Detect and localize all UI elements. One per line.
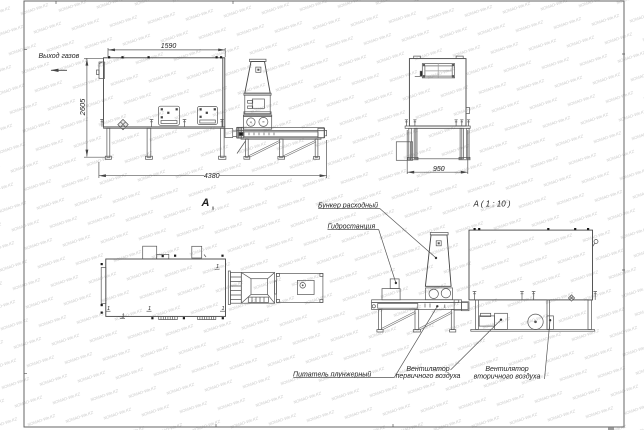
svg-text:NOMAD-We.KZ: NOMAD-We.KZ — [401, 29, 431, 43]
svg-text:NOMAD-We.KZ: NOMAD-We.KZ — [343, 347, 373, 361]
svg-text:NOMAD-We.KZ: NOMAD-We.KZ — [477, 22, 507, 36]
svg-text:NOMAD-We.KZ: NOMAD-We.KZ — [178, 341, 208, 355]
svg-text:NOMAD-We.KZ: NOMAD-We.KZ — [389, 69, 419, 83]
svg-text:NOMAD-We.KZ: NOMAD-We.KZ — [139, 286, 169, 300]
svg-text:NOMAD-We.KZ: NOMAD-We.KZ — [0, 5, 11, 19]
svg-text:NOMAD-We.KZ: NOMAD-We.KZ — [622, 343, 644, 357]
svg-text:NOMAD-We.KZ: NOMAD-We.KZ — [547, 408, 577, 422]
svg-text:NOMAD-We.KZ: NOMAD-We.KZ — [464, 4, 494, 18]
svg-text:Выход газов: Выход газов — [39, 52, 80, 60]
svg-text:NOMAD-We.KZ: NOMAD-We.KZ — [404, 205, 434, 219]
svg-text:NOMAD-We.KZ: NOMAD-We.KZ — [392, 245, 422, 259]
svg-text:NOMAD-We.KZ: NOMAD-We.KZ — [203, 320, 233, 334]
svg-text:NOMAD-We.KZ: NOMAD-We.KZ — [303, 233, 333, 247]
svg-text:NOMAD-We.KZ: NOMAD-We.KZ — [77, 369, 107, 383]
svg-text:NOMAD-We.KZ: NOMAD-We.KZ — [224, 63, 254, 77]
svg-text:NOMAD-We.KZ: NOMAD-We.KZ — [609, 325, 639, 339]
svg-text:NOMAD-We.KZ: NOMAD-We.KZ — [73, 135, 103, 149]
svg-text:NOMAD-We.KZ: NOMAD-We.KZ — [469, 297, 499, 311]
svg-text:NOMAD-We.KZ: NOMAD-We.KZ — [254, 335, 284, 349]
svg-text:NOMAD-We.KZ: NOMAD-We.KZ — [9, 101, 39, 115]
svg-text:NOMAD-We.KZ: NOMAD-We.KZ — [531, 214, 561, 228]
svg-text:NOMAD-We.KZ: NOMAD-We.KZ — [518, 195, 548, 209]
svg-text:NOMAD-We.KZ: NOMAD-We.KZ — [355, 307, 385, 321]
svg-text:NOMAD-We.KZ: NOMAD-We.KZ — [338, 54, 368, 68]
svg-text:2605: 2605 — [78, 98, 87, 117]
svg-text:NOMAD-We.KZ: NOMAD-We.KZ — [579, 53, 609, 67]
svg-text:NOMAD-We.KZ: NOMAD-We.KZ — [99, 172, 129, 186]
svg-text:NOMAD-We.KZ: NOMAD-We.KZ — [608, 266, 638, 280]
svg-text:NOMAD-We.KZ: NOMAD-We.KZ — [148, 70, 178, 84]
svg-text:NOMAD-We.KZ: NOMAD-We.KZ — [204, 378, 234, 392]
svg-text:NOMAD-We.KZ: NOMAD-We.KZ — [366, 208, 396, 222]
svg-text:NOMAD-We.KZ: NOMAD-We.KZ — [402, 87, 432, 101]
svg-text:NOMAD-We.KZ: NOMAD-We.KZ — [126, 267, 156, 281]
svg-text:NOMAD-We.KZ: NOMAD-We.KZ — [606, 149, 636, 163]
svg-text:NOMAD-We.KZ: NOMAD-We.KZ — [492, 158, 522, 172]
svg-text:NOMAD-We.KZ: NOMAD-We.KZ — [341, 230, 371, 244]
svg-text:NOMAD-We.KZ: NOMAD-We.KZ — [331, 387, 361, 401]
svg-text:NOMAD-We.KZ: NOMAD-We.KZ — [541, 56, 571, 70]
svg-text:NOMAD-We.KZ: NOMAD-We.KZ — [147, 11, 177, 25]
svg-text:NOMAD-We.KZ: NOMAD-We.KZ — [186, 66, 216, 80]
svg-text:NOMAD-We.KZ: NOMAD-We.KZ — [555, 133, 585, 147]
svg-text:NOMAD-We.KZ: NOMAD-We.KZ — [123, 91, 153, 105]
svg-text:NOMAD-We.KZ: NOMAD-We.KZ — [26, 354, 56, 368]
svg-text:NOMAD-We.KZ: NOMAD-We.KZ — [327, 152, 357, 166]
svg-text:NOMAD-We.KZ: NOMAD-We.KZ — [585, 405, 615, 419]
svg-text:NOMAD-We.KZ: NOMAD-We.KZ — [520, 313, 550, 327]
svg-text:NOMAD-We.KZ: NOMAD-We.KZ — [50, 274, 80, 288]
svg-text:NOMAD-We.KZ: NOMAD-We.KZ — [200, 144, 230, 158]
svg-text:NOMAD-We.KZ: NOMAD-We.KZ — [48, 156, 78, 170]
svg-text:NOMAD-We.KZ: NOMAD-We.KZ — [363, 32, 393, 46]
svg-text:NOMAD-We.KZ: NOMAD-We.KZ — [329, 270, 359, 284]
svg-text:NOMAD-We.KZ: NOMAD-We.KZ — [100, 230, 130, 244]
svg-text:NOMAD-We.KZ: NOMAD-We.KZ — [391, 186, 421, 200]
svg-text:NOMAD-We.KZ: NOMAD-We.KZ — [175, 165, 205, 179]
svg-text:NOMAD-We.KZ: NOMAD-We.KZ — [266, 295, 296, 309]
svg-text:NOMAD-We.KZ: NOMAD-We.KZ — [0, 317, 29, 331]
svg-text:NOMAD-We.KZ: NOMAD-We.KZ — [189, 242, 219, 256]
svg-text:NOMAD-We.KZ: NOMAD-We.KZ — [494, 276, 524, 290]
svg-text:NOMAD-We.KZ: NOMAD-We.KZ — [597, 365, 627, 379]
svg-text:NOMAD-We.KZ: NOMAD-We.KZ — [72, 76, 102, 90]
svg-text:NOMAD-We.KZ: NOMAD-We.KZ — [546, 350, 576, 364]
svg-text:NOMAD-We.KZ: NOMAD-We.KZ — [0, 141, 26, 155]
svg-text:NOMAD-We.KZ: NOMAD-We.KZ — [503, 59, 533, 73]
svg-text:NOMAD-We.KZ: NOMAD-We.KZ — [176, 224, 206, 238]
svg-text:NOMAD-We.KZ: NOMAD-We.KZ — [102, 348, 132, 362]
svg-text:NOMAD-We.KZ: NOMAD-We.KZ — [264, 177, 294, 191]
svg-text:NOMAD-We.KZ: NOMAD-We.KZ — [342, 288, 372, 302]
svg-text:NOMAD-We.KZ: NOMAD-We.KZ — [0, 82, 25, 96]
svg-text:NOMAD-We.KZ: NOMAD-We.KZ — [354, 248, 384, 262]
svg-text:NOMAD-We.KZ: NOMAD-We.KZ — [241, 316, 271, 330]
svg-text:Гидростанция: Гидростанция — [328, 222, 376, 230]
svg-text:NOMAD-We.KZ: NOMAD-We.KZ — [517, 136, 547, 150]
svg-text:NOMAD-We.KZ: NOMAD-We.KZ — [313, 75, 343, 89]
svg-text:NOMAD-We.KZ: NOMAD-We.KZ — [556, 192, 586, 206]
svg-text:NOMAD-We.KZ: NOMAD-We.KZ — [306, 409, 336, 423]
svg-text:NOMAD-We.KZ: NOMAD-We.KZ — [274, 20, 304, 34]
svg-text:NOMAD-We.KZ: NOMAD-We.KZ — [287, 38, 317, 52]
svg-text:NOMAD-We.KZ: NOMAD-We.KZ — [381, 344, 411, 358]
svg-text:NOMAD-We.KZ: NOMAD-We.KZ — [553, 16, 583, 30]
svg-text:NOMAD-We.KZ: NOMAD-We.KZ — [63, 292, 93, 306]
svg-text:NOMAD-We.KZ: NOMAD-We.KZ — [13, 336, 43, 350]
svg-text:NOMAD-We.KZ: NOMAD-We.KZ — [593, 130, 623, 144]
svg-text:NOMAD-We.KZ: NOMAD-We.KZ — [71, 17, 101, 31]
svg-text:NOMAD-We.KZ: NOMAD-We.KZ — [496, 393, 526, 407]
svg-text:NOMAD-We.KZ: NOMAD-We.KZ — [300, 57, 330, 71]
svg-text:NOMAD-We.KZ: NOMAD-We.KZ — [223, 4, 253, 18]
svg-text:NOMAD-We.KZ: NOMAD-We.KZ — [33, 20, 63, 34]
svg-text:NOMAD-We.KZ: NOMAD-We.KZ — [584, 346, 614, 360]
svg-text:NOMAD-We.KZ: NOMAD-We.KZ — [617, 50, 644, 64]
svg-text:NOMAD-We.KZ: NOMAD-We.KZ — [478, 81, 508, 95]
svg-text:NOMAD-We.KZ: NOMAD-We.KZ — [109, 14, 139, 28]
svg-text:NOMAD-We.KZ: NOMAD-We.KZ — [623, 402, 644, 416]
svg-text:NOMAD-We.KZ: NOMAD-We.KZ — [267, 353, 297, 367]
svg-text:NOMAD-We.KZ: NOMAD-We.KZ — [114, 308, 144, 322]
svg-text:NOMAD-We.KZ: NOMAD-We.KZ — [528, 38, 558, 52]
svg-text:первичного воздуха: первичного воздуха — [396, 372, 461, 380]
svg-text:NOMAD-We.KZ: NOMAD-We.KZ — [631, 127, 644, 141]
svg-text:NOMAD-We.KZ: NOMAD-We.KZ — [364, 91, 394, 105]
svg-text:NOMAD-We.KZ: NOMAD-We.KZ — [216, 338, 246, 352]
svg-text:NOMAD-We.KZ: NOMAD-We.KZ — [151, 246, 181, 260]
svg-text:NOMAD-We.KZ: NOMAD-We.KZ — [47, 98, 77, 112]
svg-text:NOMAD-We.KZ: NOMAD-We.KZ — [453, 103, 483, 117]
svg-text:NOMAD-We.KZ: NOMAD-We.KZ — [34, 79, 64, 93]
svg-text:NOMAD-We.KZ: NOMAD-We.KZ — [58, 0, 88, 13]
svg-text:NOMAD-We.KZ: NOMAD-We.KZ — [299, 0, 329, 12]
svg-text:NOMAD-We.KZ: NOMAD-We.KZ — [388, 10, 418, 24]
svg-text:NOMAD-We.KZ: NOMAD-We.KZ — [51, 332, 81, 346]
svg-text:NOMAD-We.KZ: NOMAD-We.KZ — [22, 119, 52, 133]
svg-text:NOMAD-We.KZ: NOMAD-We.KZ — [112, 190, 142, 204]
svg-text:NOMAD-We.KZ: NOMAD-We.KZ — [605, 90, 635, 104]
svg-text:NOMAD-We.KZ: NOMAD-We.KZ — [558, 309, 588, 323]
svg-text:NOMAD-We.KZ: NOMAD-We.KZ — [162, 147, 192, 161]
svg-text:NOMAD-We.KZ: NOMAD-We.KZ — [153, 363, 183, 377]
svg-text:NOMAD-We.KZ: NOMAD-We.KZ — [275, 78, 305, 92]
svg-text:NOMAD-We.KZ: NOMAD-We.KZ — [199, 85, 229, 99]
svg-text:NOMAD-We.KZ: NOMAD-We.KZ — [115, 366, 145, 380]
svg-text:NOMAD-We.KZ: NOMAD-We.KZ — [534, 390, 564, 404]
svg-text:NOMAD-We.KZ: NOMAD-We.KZ — [380, 285, 410, 299]
svg-text:NOMAD-We.KZ: NOMAD-We.KZ — [607, 207, 637, 221]
svg-text:NOMAD-We.KZ: NOMAD-We.KZ — [481, 257, 511, 271]
svg-text:NOMAD-We.KZ: NOMAD-We.KZ — [190, 301, 220, 315]
svg-text:NOMAD-We.KZ: NOMAD-We.KZ — [165, 323, 195, 337]
svg-text:NOMAD-We.KZ: NOMAD-We.KZ — [226, 181, 256, 195]
svg-text:NOMAD-We.KZ: NOMAD-We.KZ — [128, 385, 158, 399]
svg-text:NOMAD-We.KZ: NOMAD-We.KZ — [430, 242, 460, 256]
svg-text:NOMAD-We.KZ: NOMAD-We.KZ — [140, 345, 170, 359]
svg-text:NOMAD-We.KZ: NOMAD-We.KZ — [465, 62, 495, 76]
svg-text:NOMAD-We.KZ: NOMAD-We.KZ — [261, 1, 291, 15]
svg-text:NOMAD-We.KZ: NOMAD-We.KZ — [188, 184, 218, 198]
svg-text:NOMAD-We.KZ: NOMAD-We.KZ — [1, 376, 31, 390]
svg-text:NOMAD-We.KZ: NOMAD-We.KZ — [635, 362, 644, 376]
svg-text:NOMAD-We.KZ: NOMAD-We.KZ — [290, 214, 320, 228]
svg-text:NOMAD-We.KZ: NOMAD-We.KZ — [177, 283, 207, 297]
svg-text:NOMAD-We.KZ: NOMAD-We.KZ — [506, 235, 536, 249]
svg-text:NOMAD-We.KZ: NOMAD-We.KZ — [326, 94, 356, 108]
svg-text:NOMAD-We.KZ: NOMAD-We.KZ — [468, 239, 498, 253]
svg-text:NOMAD-We.KZ: NOMAD-We.KZ — [249, 41, 279, 55]
svg-text:NOMAD-We.KZ: NOMAD-We.KZ — [570, 269, 600, 283]
svg-text:NOMAD-We.KZ: NOMAD-We.KZ — [0, 200, 27, 214]
svg-text:NOMAD-We.KZ: NOMAD-We.KZ — [0, 398, 5, 412]
svg-text:NOMAD-We.KZ: NOMAD-We.KZ — [87, 212, 117, 226]
svg-text:NOMAD-We.KZ: NOMAD-We.KZ — [64, 351, 94, 365]
svg-text:NOMAD-We.KZ: NOMAD-We.KZ — [596, 306, 626, 320]
svg-text:NOMAD-We.KZ: NOMAD-We.KZ — [458, 396, 488, 410]
svg-text:NOMAD-We.KZ: NOMAD-We.KZ — [516, 78, 546, 92]
svg-text:NOMAD-We.KZ: NOMAD-We.KZ — [212, 103, 242, 117]
svg-text:NOMAD-We.KZ: NOMAD-We.KZ — [127, 326, 157, 340]
svg-text:NOMAD-We.KZ: NOMAD-We.KZ — [304, 292, 334, 306]
svg-text:NOMAD-We.KZ: NOMAD-We.KZ — [163, 205, 193, 219]
svg-text:NOMAD-We.KZ: NOMAD-We.KZ — [444, 319, 474, 333]
svg-text:NOMAD-We.KZ: NOMAD-We.KZ — [369, 384, 399, 398]
svg-text:NOMAD-We.KZ: NOMAD-We.KZ — [84, 36, 114, 50]
svg-text:NOMAD-We.KZ: NOMAD-We.KZ — [595, 247, 625, 261]
svg-text:NOMAD-We.KZ: NOMAD-We.KZ — [113, 249, 143, 263]
svg-text:NOMAD-We.KZ: NOMAD-We.KZ — [52, 391, 82, 405]
svg-text:NOMAD-We.KZ: NOMAD-We.KZ — [533, 331, 563, 345]
svg-text:NOMAD-We.KZ: NOMAD-We.KZ — [604, 31, 634, 45]
svg-text:NOMAD-We.KZ: NOMAD-We.KZ — [238, 140, 268, 154]
svg-text:NOMAD-We.KZ: NOMAD-We.KZ — [277, 196, 307, 210]
svg-text:NOMAD-We.KZ: NOMAD-We.KZ — [490, 41, 520, 55]
svg-text:NOMAD-We.KZ: NOMAD-We.KZ — [405, 263, 435, 277]
svg-text:NOMAD-We.KZ: NOMAD-We.KZ — [74, 193, 104, 207]
svg-text:NOMAD-We.KZ: NOMAD-We.KZ — [330, 329, 360, 343]
svg-text:А: А — [201, 197, 210, 209]
svg-text:NOMAD-We.KZ: NOMAD-We.KZ — [174, 107, 204, 121]
svg-text:NOMAD-We.KZ: NOMAD-We.KZ — [479, 140, 509, 154]
svg-text:NOMAD-We.KZ: NOMAD-We.KZ — [164, 264, 194, 278]
svg-text:NOMAD-We.KZ: NOMAD-We.KZ — [591, 13, 621, 27]
svg-text:NOMAD-We.KZ: NOMAD-We.KZ — [532, 272, 562, 286]
svg-text:Вентилятор: Вентилятор — [406, 366, 449, 373]
svg-text:NOMAD-We.KZ: NOMAD-We.KZ — [240, 258, 270, 272]
svg-text:NOMAD-We.KZ: NOMAD-We.KZ — [382, 403, 412, 417]
svg-text:NOMAD-We.KZ: NOMAD-We.KZ — [25, 295, 55, 309]
svg-text:NOMAD-We.KZ: NOMAD-We.KZ — [89, 329, 119, 343]
svg-text:NOMAD-We.KZ: NOMAD-We.KZ — [8, 42, 38, 56]
svg-text:NOMAD-We.KZ: NOMAD-We.KZ — [568, 152, 598, 166]
svg-text:NOMAD-We.KZ: NOMAD-We.KZ — [632, 186, 644, 200]
svg-text:NOMAD-We.KZ: NOMAD-We.KZ — [279, 313, 309, 327]
svg-text:NOMAD-We.KZ: NOMAD-We.KZ — [125, 209, 155, 223]
svg-text:NOMAD-We.KZ: NOMAD-We.KZ — [493, 217, 523, 231]
svg-text:NOMAD-We.KZ: NOMAD-We.KZ — [554, 75, 584, 89]
svg-text:NOMAD-We.KZ: NOMAD-We.KZ — [12, 277, 42, 291]
svg-text:NOMAD-We.KZ: NOMAD-We.KZ — [559, 368, 589, 382]
svg-text:NOMAD-We.KZ: NOMAD-We.KZ — [0, 221, 2, 235]
svg-text:NOMAD-We.KZ: NOMAD-We.KZ — [255, 394, 285, 408]
svg-text:NOMAD-We.KZ: NOMAD-We.KZ — [101, 289, 131, 303]
svg-text:NOMAD-We.KZ: NOMAD-We.KZ — [482, 316, 512, 330]
svg-text:NOMAD-We.KZ: NOMAD-We.KZ — [239, 199, 269, 213]
svg-text:NOMAD-We.KZ: NOMAD-We.KZ — [592, 71, 622, 85]
svg-text:NOMAD-We.KZ: NOMAD-We.KZ — [138, 227, 168, 241]
svg-text:NOMAD-We.KZ: NOMAD-We.KZ — [214, 221, 244, 235]
svg-text:NOMAD-We.KZ: NOMAD-We.KZ — [0, 181, 14, 195]
svg-text:NOMAD-We.KZ: NOMAD-We.KZ — [507, 294, 537, 308]
svg-text:NOMAD-We.KZ: NOMAD-We.KZ — [0, 64, 12, 78]
svg-text:NOMAD-We.KZ: NOMAD-We.KZ — [85, 94, 115, 108]
svg-text:NOMAD-We.KZ: NOMAD-We.KZ — [340, 171, 370, 185]
svg-text:4380: 4380 — [204, 173, 220, 180]
svg-text:NOMAD-We.KZ: NOMAD-We.KZ — [316, 251, 346, 265]
svg-text:NOMAD-We.KZ: NOMAD-We.KZ — [339, 112, 369, 126]
svg-text:NOMAD-We.KZ: NOMAD-We.KZ — [414, 47, 444, 61]
svg-text:NOMAD-We.KZ: NOMAD-We.KZ — [630, 68, 644, 82]
svg-text:Питатель плунжерный: Питатель плунжерный — [293, 370, 371, 378]
svg-text:NOMAD-We.KZ: NOMAD-We.KZ — [185, 8, 215, 22]
svg-text:NOMAD-We.KZ: NOMAD-We.KZ — [90, 388, 120, 402]
svg-text:NOMAD-We.KZ: NOMAD-We.KZ — [351, 72, 381, 86]
svg-text:NOMAD-We.KZ: NOMAD-We.KZ — [442, 202, 472, 216]
svg-text:NOMAD-We.KZ: NOMAD-We.KZ — [542, 115, 572, 129]
svg-text:NOMAD-We.KZ: NOMAD-We.KZ — [160, 29, 190, 43]
svg-text:NOMAD-We.KZ: NOMAD-We.KZ — [443, 260, 473, 274]
svg-text:NOMAD-We.KZ: NOMAD-We.KZ — [325, 35, 355, 49]
svg-text:NOMAD-We.KZ: NOMAD-We.KZ — [0, 24, 24, 38]
svg-text:NOMAD-We.KZ: NOMAD-We.KZ — [441, 143, 471, 157]
svg-text:NOMAD-We.KZ: NOMAD-We.KZ — [0, 280, 3, 294]
svg-text:NOMAD-We.KZ: NOMAD-We.KZ — [426, 7, 456, 21]
svg-text:NOMAD-We.KZ: NOMAD-We.KZ — [571, 328, 601, 342]
svg-text:NOMAD-We.KZ: NOMAD-We.KZ — [420, 399, 450, 413]
svg-text:NOMAD-We.KZ: NOMAD-We.KZ — [582, 229, 612, 243]
svg-text:NOMAD-We.KZ: NOMAD-We.KZ — [0, 357, 17, 371]
svg-text:NOMAD-We.KZ: NOMAD-We.KZ — [292, 332, 322, 346]
svg-text:NOMAD-We.KZ: NOMAD-We.KZ — [150, 187, 180, 201]
svg-text:NOMAD-We.KZ: NOMAD-We.KZ — [305, 350, 335, 364]
svg-text:NOMAD-We.KZ: NOMAD-We.KZ — [242, 375, 272, 389]
svg-text:NOMAD-We.KZ: NOMAD-We.KZ — [251, 159, 281, 173]
svg-text:NOMAD-We.KZ: NOMAD-We.KZ — [312, 17, 342, 31]
svg-text:NOMAD-We.KZ: NOMAD-We.KZ — [569, 210, 599, 224]
svg-text:NOMAD-We.KZ: NOMAD-We.KZ — [495, 334, 525, 348]
svg-text:NOMAD-We.KZ: NOMAD-We.KZ — [456, 279, 486, 293]
svg-text:NOMAD-We.KZ: NOMAD-We.KZ — [88, 271, 118, 285]
svg-text:NOMAD-We.KZ: NOMAD-We.KZ — [395, 421, 425, 430]
svg-text:NOMAD-We.KZ: NOMAD-We.KZ — [519, 254, 549, 268]
svg-text:NOMAD-We.KZ: NOMAD-We.KZ — [86, 153, 116, 167]
svg-text:NOMAD-We.KZ: NOMAD-We.KZ — [265, 236, 295, 250]
svg-text:NOMAD-We.KZ: NOMAD-We.KZ — [344, 406, 374, 420]
svg-text:NOMAD-We.KZ: NOMAD-We.KZ — [429, 183, 459, 197]
svg-text:Вентилятор: Вентилятор — [485, 366, 528, 373]
svg-text:NOMAD-We.KZ: NOMAD-We.KZ — [368, 325, 398, 339]
svg-text:NOMAD-We.KZ: NOMAD-We.KZ — [619, 167, 644, 181]
svg-text:950: 950 — [433, 166, 445, 173]
svg-text:NOMAD-We.KZ: NOMAD-We.KZ — [419, 341, 449, 355]
svg-text:NOMAD-We.KZ: NOMAD-We.KZ — [0, 299, 16, 313]
svg-text:NOMAD-We.KZ: NOMAD-We.KZ — [179, 400, 209, 414]
svg-text:NOMAD-We.KZ: NOMAD-We.KZ — [24, 237, 54, 251]
svg-text:NOMAD-We.KZ: NOMAD-We.KZ — [236, 23, 266, 37]
svg-text:NOMAD-We.KZ: NOMAD-We.KZ — [530, 155, 560, 169]
svg-text:NOMAD-We.KZ: NOMAD-We.KZ — [515, 19, 545, 33]
svg-text:NOMAD-We.KZ: NOMAD-We.KZ — [634, 303, 644, 317]
svg-text:NOMAD-We.KZ: NOMAD-We.KZ — [502, 1, 532, 15]
svg-text:NOMAD-We.KZ: NOMAD-We.KZ — [540, 0, 570, 12]
svg-text:NOMAD-We.KZ: NOMAD-We.KZ — [509, 411, 539, 425]
svg-text:NOMAD-We.KZ: NOMAD-We.KZ — [504, 118, 534, 132]
svg-text:NOMAD-We.KZ: NOMAD-We.KZ — [122, 33, 152, 47]
svg-text:NOMAD-We.KZ: NOMAD-We.KZ — [141, 403, 171, 417]
svg-text:NOMAD-We.KZ: NOMAD-We.KZ — [293, 390, 323, 404]
svg-text:NOMAD-We.KZ: NOMAD-We.KZ — [166, 382, 196, 396]
svg-text:NOMAD-We.KZ: NOMAD-We.KZ — [111, 131, 141, 145]
svg-text:NOMAD-We.KZ: NOMAD-We.KZ — [39, 373, 69, 387]
svg-text:NOMAD-We.KZ: NOMAD-We.KZ — [376, 50, 406, 64]
svg-text:NOMAD-We.KZ: NOMAD-We.KZ — [229, 357, 259, 371]
svg-text:NOMAD-We.KZ: NOMAD-We.KZ — [23, 178, 53, 192]
svg-text:NOMAD-We.KZ: NOMAD-We.KZ — [192, 419, 222, 430]
svg-text:NOMAD-We.KZ: NOMAD-We.KZ — [440, 84, 470, 98]
svg-text:NOMAD-We.KZ: NOMAD-We.KZ — [417, 223, 447, 237]
svg-text:NOMAD-We.KZ: NOMAD-We.KZ — [505, 177, 535, 191]
svg-text:NOMAD-We.KZ: NOMAD-We.KZ — [38, 314, 68, 328]
svg-text:NOMAD-We.KZ: NOMAD-We.KZ — [62, 234, 92, 248]
svg-text:NOMAD-We.KZ: NOMAD-We.KZ — [0, 163, 1, 177]
svg-text:NOMAD-We.KZ: NOMAD-We.KZ — [14, 394, 44, 408]
svg-text:NOMAD-We.KZ: NOMAD-We.KZ — [11, 218, 41, 232]
svg-text:NOMAD-We.KZ: NOMAD-We.KZ — [0, 240, 15, 254]
svg-text:NOMAD-We.KZ: NOMAD-We.KZ — [36, 197, 66, 211]
svg-text:NOMAD-We.KZ: NOMAD-We.KZ — [491, 99, 521, 113]
svg-text:NOMAD-We.KZ: NOMAD-We.KZ — [365, 149, 395, 163]
svg-text:NOMAD-We.KZ: NOMAD-We.KZ — [433, 418, 463, 430]
svg-text:NOMAD-We.KZ: NOMAD-We.KZ — [268, 412, 298, 426]
svg-text:NOMAD-We.KZ: NOMAD-We.KZ — [217, 397, 247, 411]
svg-text:NOMAD-We.KZ: NOMAD-We.KZ — [154, 422, 184, 430]
svg-text:NOMAD-We.KZ: NOMAD-We.KZ — [454, 161, 484, 175]
svg-text:NOMAD-We.KZ: NOMAD-We.KZ — [46, 39, 76, 53]
svg-text:NOMAD-We.KZ: NOMAD-We.KZ — [594, 189, 624, 203]
svg-text:NOMAD-We.KZ: NOMAD-We.KZ — [543, 173, 573, 187]
svg-text:NOMAD-We.KZ: NOMAD-We.KZ — [228, 298, 258, 312]
svg-text:NOMAD-We.KZ: NOMAD-We.KZ — [636, 420, 644, 430]
svg-text:NOMAD-We.KZ: NOMAD-We.KZ — [0, 123, 13, 137]
svg-text:NOMAD-We.KZ: NOMAD-We.KZ — [21, 61, 51, 75]
svg-text:NOMAD-We.KZ: NOMAD-We.KZ — [75, 252, 105, 266]
svg-text:1590: 1590 — [161, 43, 177, 50]
svg-text:вторичного воздуха: вторичного воздуха — [474, 372, 541, 380]
svg-text:NOMAD-We.KZ: NOMAD-We.KZ — [0, 416, 18, 430]
svg-text:NOMAD-We.KZ: NOMAD-We.KZ — [544, 232, 574, 246]
svg-text:NOMAD-We.KZ: NOMAD-We.KZ — [572, 387, 602, 401]
svg-text:NOMAD-We.KZ: NOMAD-We.KZ — [390, 128, 420, 142]
svg-text:NOMAD-We.KZ: NOMAD-We.KZ — [110, 73, 140, 87]
svg-text:NOMAD-We.KZ: NOMAD-We.KZ — [620, 226, 644, 240]
svg-text:NOMAD-We.KZ: NOMAD-We.KZ — [633, 244, 644, 258]
svg-text:NOMAD-We.KZ: NOMAD-We.KZ — [580, 112, 610, 126]
svg-text:NOMAD-We.KZ: NOMAD-We.KZ — [27, 413, 57, 427]
svg-text:NOMAD-We.KZ: NOMAD-We.KZ — [198, 26, 228, 40]
svg-text:NOMAD-We.KZ: NOMAD-We.KZ — [49, 215, 79, 229]
